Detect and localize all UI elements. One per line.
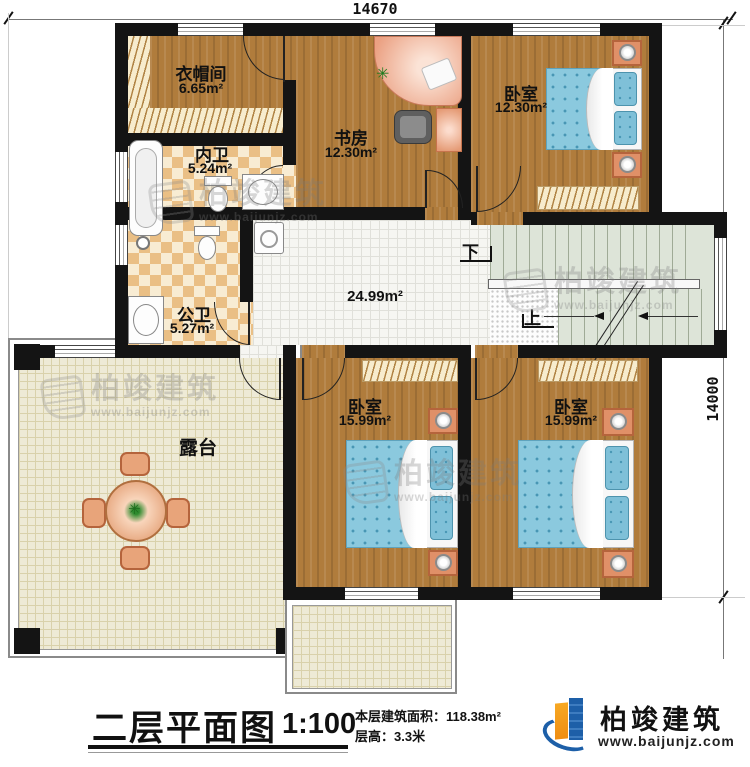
wall bbox=[518, 345, 540, 358]
door-leaf bbox=[248, 302, 250, 345]
wall bbox=[649, 23, 662, 225]
title-underline-thin bbox=[88, 752, 348, 753]
lamp bbox=[619, 156, 636, 173]
pillow bbox=[614, 72, 637, 106]
lamp bbox=[435, 554, 452, 571]
floor-height-text: 层高：3.3米 bbox=[355, 726, 425, 745]
bed-blanket bbox=[398, 440, 427, 548]
stair-down-mark bbox=[490, 246, 492, 262]
wardrobe bbox=[362, 360, 458, 382]
pillow bbox=[605, 496, 629, 540]
terrace-chair bbox=[120, 452, 150, 476]
study-chair-seat bbox=[400, 116, 426, 138]
bed-blanket bbox=[572, 440, 603, 548]
dimension-top: 14670 bbox=[330, 0, 420, 18]
brand-name: 柏竣建筑 bbox=[600, 698, 724, 737]
wall bbox=[283, 133, 296, 165]
title-underline bbox=[88, 745, 348, 749]
wall bbox=[283, 345, 296, 600]
toilet-bowl bbox=[208, 186, 228, 212]
stair-arrow bbox=[638, 312, 648, 320]
terrace-chair bbox=[82, 498, 106, 528]
window bbox=[513, 23, 600, 36]
lamp bbox=[610, 413, 627, 430]
study-side-table bbox=[436, 108, 462, 152]
door-leaf bbox=[279, 358, 281, 400]
door-leaf bbox=[476, 166, 478, 212]
pillow bbox=[430, 496, 453, 540]
room-area-study: 12.30m² bbox=[325, 144, 377, 160]
pillow bbox=[614, 111, 637, 145]
door-leaf bbox=[425, 170, 427, 208]
window bbox=[115, 225, 128, 265]
floor-plan: 14670 14000 ✳ 下 上 bbox=[0, 0, 750, 767]
drawing-scale: 1:100 bbox=[282, 708, 356, 741]
wardrobe bbox=[538, 360, 638, 382]
door-gap bbox=[477, 212, 523, 225]
drawing-title: 二层平面图 bbox=[92, 700, 277, 751]
door-gap bbox=[475, 345, 518, 358]
terrace-post bbox=[14, 628, 40, 654]
room-area-bedroom-bl: 15.99m² bbox=[339, 412, 391, 428]
bed-blanket bbox=[586, 68, 613, 150]
door-leaf bbox=[302, 358, 304, 400]
window bbox=[714, 238, 727, 330]
extension-line bbox=[8, 13, 9, 338]
brand-url: www.baijunjz.com bbox=[598, 733, 735, 749]
window bbox=[115, 152, 128, 202]
brand-logo-icon bbox=[540, 694, 596, 756]
toilet-bowl bbox=[198, 236, 216, 260]
terrace-chair bbox=[120, 546, 150, 570]
stair-down-mark bbox=[460, 260, 492, 262]
wardrobe bbox=[537, 186, 639, 210]
extension-line bbox=[662, 25, 745, 26]
room-area-bath-public: 5.27m² bbox=[170, 320, 214, 336]
shower-drain bbox=[136, 236, 150, 250]
lamp bbox=[619, 44, 636, 61]
room-area-bedroom-tr: 12.30m² bbox=[495, 99, 547, 115]
door-leaf bbox=[283, 36, 285, 82]
lamp bbox=[435, 412, 452, 429]
wall bbox=[345, 345, 458, 358]
washing-machine-drum bbox=[260, 230, 278, 248]
wall bbox=[283, 80, 296, 133]
room-label-terrace: 露台 bbox=[179, 433, 217, 460]
stair-direction-line bbox=[648, 316, 698, 317]
stair-direction-line bbox=[544, 316, 594, 317]
window bbox=[55, 345, 115, 358]
wall bbox=[540, 345, 727, 358]
wall bbox=[471, 212, 477, 225]
stair-up-mark bbox=[522, 326, 554, 328]
stair-arrow bbox=[594, 312, 604, 320]
window bbox=[345, 587, 418, 600]
sink-basin bbox=[248, 179, 278, 205]
pillow bbox=[605, 446, 629, 490]
window bbox=[178, 23, 243, 36]
floor-area-text: 本层建筑面积：118.38m² bbox=[355, 706, 501, 725]
sink-basin bbox=[133, 304, 159, 336]
desk-plant: ✳ bbox=[376, 64, 389, 84]
cloakroom-closet bbox=[128, 108, 283, 133]
table-plant-leaves: ✳ bbox=[128, 500, 141, 518]
pillow bbox=[430, 446, 453, 490]
room-area-bath-inner: 5.24m² bbox=[188, 160, 232, 176]
stair-up-mark bbox=[522, 314, 524, 328]
lower-roof-floor bbox=[292, 605, 452, 689]
room-area-hall: 24.99m² bbox=[347, 288, 403, 305]
wall bbox=[523, 212, 649, 225]
wall bbox=[240, 220, 253, 302]
dimension-right: 14000 bbox=[704, 369, 722, 429]
toilet-tank bbox=[194, 226, 220, 236]
wall bbox=[649, 358, 662, 600]
door-gap bbox=[425, 207, 458, 220]
window bbox=[370, 23, 435, 36]
toilet-tank bbox=[204, 176, 232, 186]
wall bbox=[283, 587, 662, 600]
wall bbox=[458, 345, 471, 600]
terrace-door-gap bbox=[240, 345, 283, 358]
room-area-bedroom-br: 15.99m² bbox=[545, 412, 597, 428]
door-gap bbox=[302, 345, 345, 358]
hall-floor bbox=[253, 220, 490, 345]
terrace-chair bbox=[166, 498, 190, 528]
door-gap bbox=[283, 165, 296, 207]
stair-handrail bbox=[488, 279, 700, 289]
dimension-line-top bbox=[8, 19, 733, 20]
window bbox=[513, 587, 600, 600]
door-leaf bbox=[475, 358, 477, 400]
bathtub-basin bbox=[135, 148, 157, 228]
lamp bbox=[610, 555, 627, 572]
room-area-cloakroom: 6.65m² bbox=[179, 80, 223, 96]
extension-line bbox=[662, 597, 745, 598]
stair-flight-upper bbox=[490, 225, 698, 282]
